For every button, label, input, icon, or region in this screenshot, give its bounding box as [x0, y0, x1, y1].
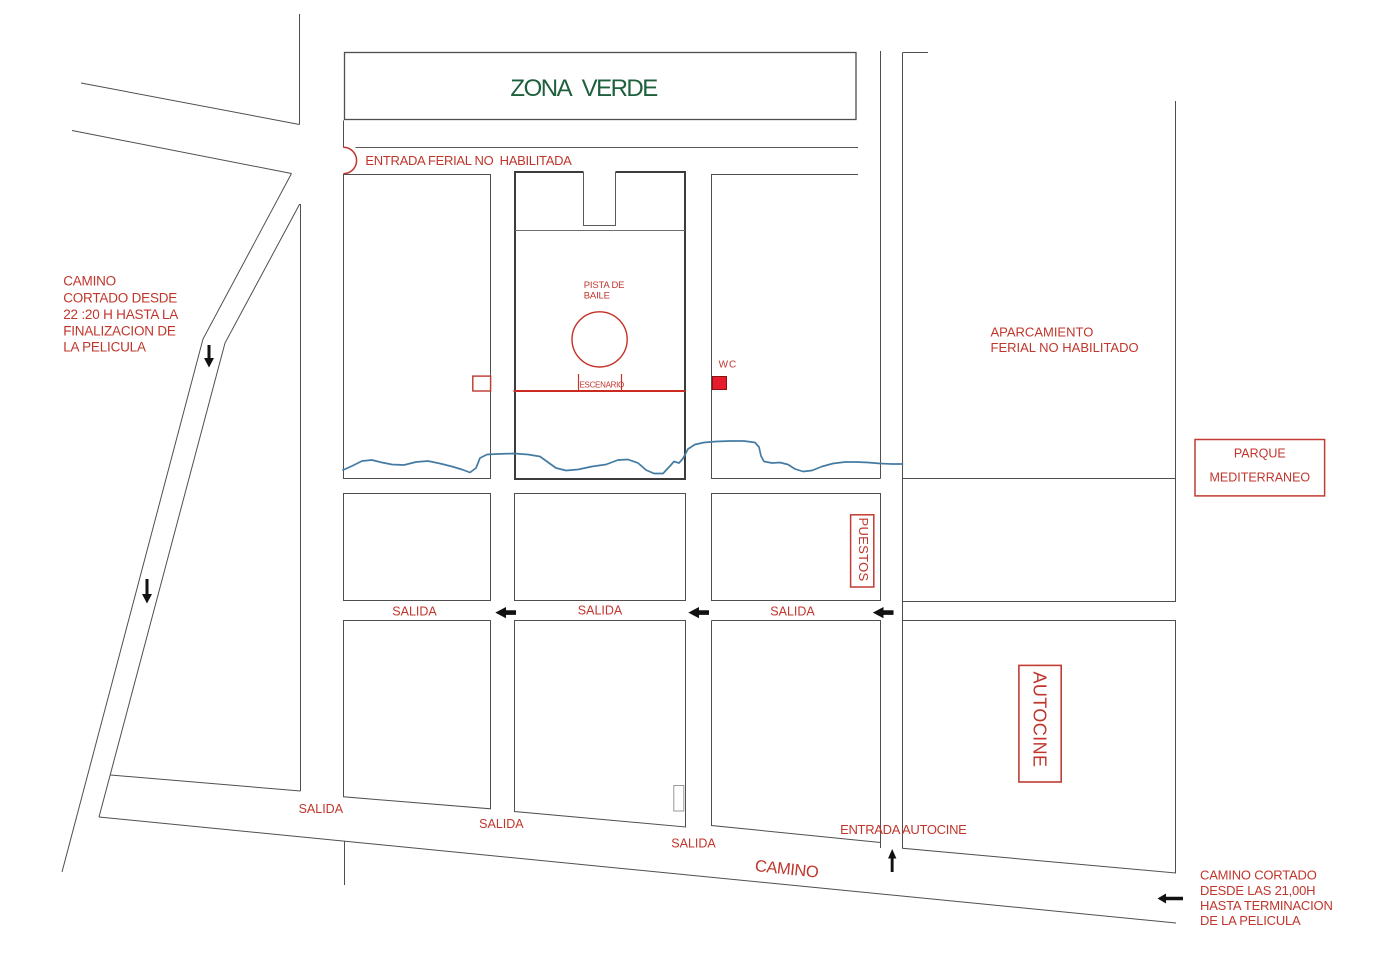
svg-text:22 :20 H HASTA LA: 22 :20 H HASTA LA [63, 307, 178, 322]
svg-text:SALIDA: SALIDA [578, 604, 623, 618]
svg-text:FINALIZACION DE: FINALIZACION DE [63, 323, 176, 338]
svg-text:BAILE: BAILE [584, 291, 610, 302]
svg-text:SALIDA: SALIDA [770, 605, 815, 619]
svg-text:FERIAL NO HABILITADO: FERIAL NO HABILITADO [991, 340, 1139, 355]
svg-text:LA PELICULA: LA PELICULA [63, 340, 146, 355]
svg-text:DE LA PELICULA: DE LA PELICULA [1200, 913, 1301, 928]
svg-text:PARQUE: PARQUE [1234, 447, 1286, 461]
svg-text:PISTA DE: PISTA DE [584, 280, 624, 291]
svg-text:WC: WC [719, 359, 738, 370]
svg-text:AUTOCINE: AUTOCINE [1030, 672, 1050, 768]
svg-text:SALIDA: SALIDA [392, 605, 437, 619]
svg-text:APARCAMIENTO: APARCAMIENTO [991, 324, 1094, 339]
svg-text:ENTRADA FERIAL NO HABILITADA: ENTRADA FERIAL NO HABILITADA [365, 153, 572, 168]
svg-text:HASTA TERMINACION: HASTA TERMINACION [1200, 898, 1333, 913]
svg-text:CAMINO CORTADO: CAMINO CORTADO [1200, 868, 1317, 883]
svg-text:SALIDA: SALIDA [299, 802, 344, 816]
svg-text:DESDE LAS 21,00H: DESDE LAS 21,00H [1200, 883, 1315, 898]
svg-text:CORTADO DESDE: CORTADO DESDE [63, 290, 177, 305]
svg-text:MEDITERRANEO: MEDITERRANEO [1209, 471, 1310, 485]
svg-text:ESCENARIO: ESCENARIO [580, 380, 624, 389]
svg-text:PUESTOS: PUESTOS [856, 518, 871, 582]
svg-text:ZONA VERDE: ZONA VERDE [510, 75, 657, 102]
svg-text:CAMINO: CAMINO [63, 274, 116, 289]
svg-text:SALIDA: SALIDA [671, 837, 716, 851]
svg-text:SALIDA: SALIDA [479, 817, 524, 831]
svg-text:ENTRADA AUTOCINE: ENTRADA AUTOCINE [840, 822, 967, 837]
